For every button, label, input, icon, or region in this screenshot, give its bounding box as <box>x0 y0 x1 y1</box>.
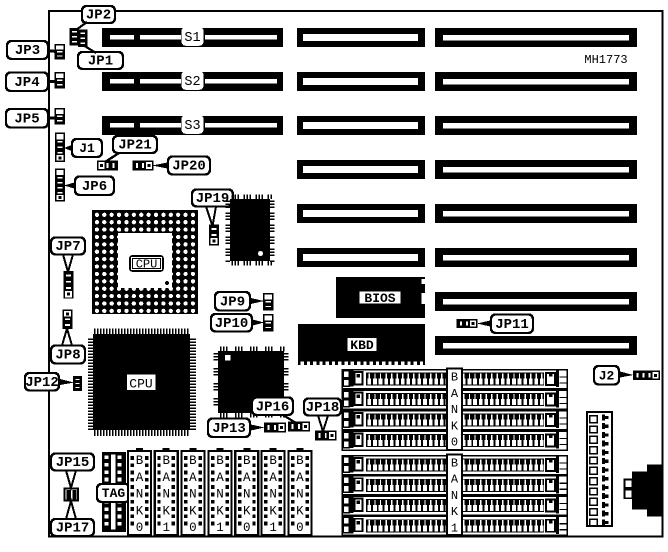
svg-text:1: 1 <box>162 521 170 535</box>
svg-text:JP8: JP8 <box>55 348 80 364</box>
svg-text:B: B <box>136 454 144 468</box>
svg-text:JP1: JP1 <box>88 54 113 70</box>
svg-text:K: K <box>269 504 277 518</box>
svg-text:JP12: JP12 <box>25 375 59 391</box>
svg-text:B: B <box>189 454 197 468</box>
svg-text:JP10: JP10 <box>215 316 249 332</box>
svg-text:JP4: JP4 <box>14 75 39 91</box>
svg-text:N: N <box>189 488 197 502</box>
svg-text:S2: S2 <box>184 75 200 90</box>
svg-text:N: N <box>216 488 224 502</box>
svg-text:0: 0 <box>296 521 304 535</box>
svg-text:A: A <box>451 387 459 401</box>
svg-text:KBD: KBD <box>350 338 374 353</box>
svg-text:JP9: JP9 <box>220 294 245 310</box>
svg-text:A: A <box>296 471 304 485</box>
svg-text:A: A <box>162 471 170 485</box>
svg-text:A: A <box>243 471 251 485</box>
svg-text:JP16: JP16 <box>256 399 290 415</box>
svg-text:0: 0 <box>136 521 144 535</box>
svg-text:A: A <box>136 471 144 485</box>
svg-text:S3: S3 <box>184 119 200 134</box>
svg-text:J1: J1 <box>79 141 95 156</box>
svg-text:B: B <box>451 457 458 471</box>
svg-text:JP6: JP6 <box>82 179 107 195</box>
svg-text:K: K <box>189 504 197 518</box>
svg-text:J2: J2 <box>599 368 615 383</box>
svg-text:N: N <box>162 488 170 502</box>
svg-text:JP18: JP18 <box>306 400 340 416</box>
svg-text:JP11: JP11 <box>495 317 529 333</box>
svg-text:S1: S1 <box>184 31 200 46</box>
svg-text:CPU: CPU <box>129 376 152 391</box>
svg-text:N: N <box>451 489 458 503</box>
svg-text:TAG: TAG <box>102 486 126 501</box>
svg-text:K: K <box>451 505 459 519</box>
svg-text:MH1773: MH1773 <box>584 53 627 67</box>
svg-text:CPU: CPU <box>136 258 158 272</box>
svg-text:JP15: JP15 <box>56 455 90 471</box>
svg-text:A: A <box>189 471 197 485</box>
svg-text:0: 0 <box>451 436 458 450</box>
svg-text:B: B <box>269 454 277 468</box>
svg-text:JP3: JP3 <box>15 43 40 59</box>
svg-text:K: K <box>296 504 304 518</box>
svg-text:JP2: JP2 <box>86 8 111 24</box>
svg-text:N: N <box>296 488 304 502</box>
svg-text:N: N <box>451 403 458 417</box>
svg-text:K: K <box>136 504 144 518</box>
svg-text:B: B <box>296 454 304 468</box>
svg-text:1: 1 <box>216 521 224 535</box>
svg-text:A: A <box>269 471 277 485</box>
svg-text:BIOS: BIOS <box>364 291 395 306</box>
svg-text:JP19: JP19 <box>196 191 230 207</box>
svg-text:JP7: JP7 <box>55 239 80 255</box>
svg-text:JP5: JP5 <box>14 111 39 127</box>
svg-text:B: B <box>451 371 458 385</box>
svg-text:JP13: JP13 <box>212 421 246 437</box>
svg-text:0: 0 <box>243 521 251 535</box>
svg-text:K: K <box>162 504 170 518</box>
svg-text:JP17: JP17 <box>56 521 90 537</box>
svg-text:1: 1 <box>451 521 458 535</box>
svg-text:A: A <box>216 471 224 485</box>
svg-text:B: B <box>243 454 251 468</box>
svg-text:B: B <box>162 454 170 468</box>
svg-text:K: K <box>216 504 224 518</box>
svg-text:JP21: JP21 <box>118 138 152 154</box>
svg-text:B: B <box>216 454 224 468</box>
svg-text:N: N <box>136 488 144 502</box>
svg-text:K: K <box>451 419 459 433</box>
svg-text:0: 0 <box>189 521 197 535</box>
svg-text:A: A <box>451 473 459 487</box>
svg-text:N: N <box>243 488 251 502</box>
svg-text:1: 1 <box>269 521 277 535</box>
svg-text:K: K <box>243 504 251 518</box>
svg-text:JP20: JP20 <box>172 159 206 175</box>
svg-text:N: N <box>269 488 277 502</box>
